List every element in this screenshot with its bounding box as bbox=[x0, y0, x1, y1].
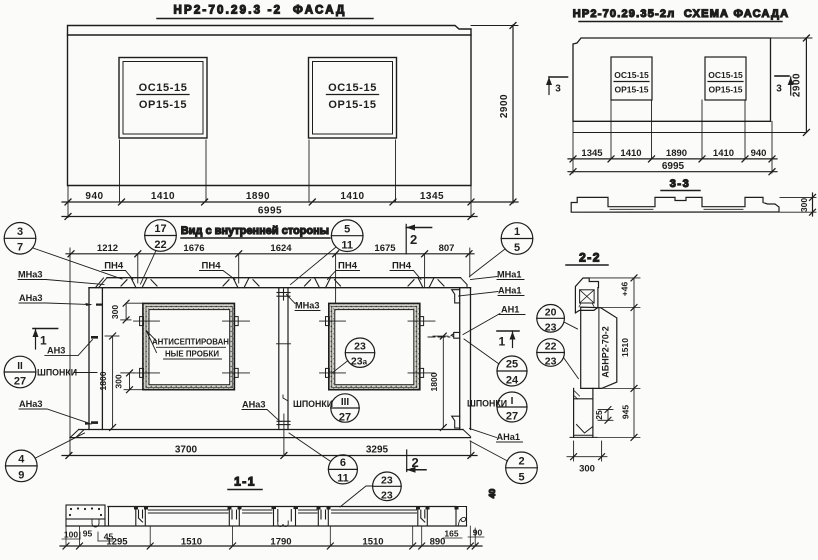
svg-text:МНа1: МНа1 bbox=[497, 270, 522, 280]
svg-text:1676: 1676 bbox=[183, 243, 204, 254]
svg-text:6: 6 bbox=[340, 457, 346, 469]
svg-text:20: 20 bbox=[545, 307, 557, 319]
svg-text:1890: 1890 bbox=[246, 191, 270, 202]
svg-text:5: 5 bbox=[514, 242, 520, 254]
svg-text:95: 95 bbox=[83, 529, 93, 539]
svg-text:ПН4: ПН4 bbox=[338, 261, 358, 272]
svg-text:МНа3: МНа3 bbox=[18, 270, 43, 280]
svg-text:АНТИСЕПТИРОВАН: АНТИСЕПТИРОВАН bbox=[152, 338, 229, 347]
svg-text:I: I bbox=[511, 396, 514, 407]
svg-text:2-2: 2-2 bbox=[579, 251, 601, 265]
svg-text:6995: 6995 bbox=[258, 206, 282, 217]
svg-text:2900: 2900 bbox=[499, 94, 510, 118]
svg-text:АН1: АН1 bbox=[501, 305, 519, 315]
svg-text:2: 2 bbox=[518, 456, 524, 468]
svg-text:17: 17 bbox=[154, 223, 166, 235]
svg-text:АНа3: АНа3 bbox=[242, 400, 266, 410]
svg-text:1345: 1345 bbox=[420, 191, 444, 202]
svg-text:1510: 1510 bbox=[620, 338, 630, 357]
svg-text:1800: 1800 bbox=[429, 372, 439, 391]
svg-text:ОС15-15: ОС15-15 bbox=[614, 70, 649, 80]
svg-text:940: 940 bbox=[751, 148, 767, 159]
svg-text:11: 11 bbox=[341, 240, 353, 252]
svg-text:1: 1 bbox=[514, 226, 520, 238]
svg-text:40: 40 bbox=[487, 489, 497, 499]
svg-text:5: 5 bbox=[344, 224, 350, 236]
svg-text:6995: 6995 bbox=[662, 161, 685, 172]
svg-text:1800: 1800 bbox=[98, 371, 108, 390]
svg-text:27: 27 bbox=[14, 376, 26, 388]
svg-text:3700: 3700 bbox=[175, 445, 198, 456]
svg-text:22: 22 bbox=[154, 239, 166, 251]
svg-text:3295: 3295 bbox=[366, 445, 389, 456]
svg-text:23: 23 bbox=[381, 475, 393, 487]
svg-text:ОС15-15: ОС15-15 bbox=[328, 82, 377, 94]
svg-text:ОР15-15: ОР15-15 bbox=[328, 99, 376, 111]
svg-text:940: 940 bbox=[85, 191, 103, 202]
svg-text:25: 25 bbox=[506, 359, 518, 371]
svg-text:300: 300 bbox=[579, 464, 595, 475]
svg-text:7: 7 bbox=[17, 242, 23, 254]
svg-text:4: 4 bbox=[18, 454, 25, 466]
svg-text:1-1: 1-1 bbox=[234, 475, 256, 489]
svg-text:1212: 1212 bbox=[97, 243, 118, 254]
svg-text:300: 300 bbox=[114, 374, 124, 388]
svg-text:300: 300 bbox=[110, 305, 120, 319]
svg-text:22: 22 bbox=[545, 341, 557, 353]
svg-text:2: 2 bbox=[412, 455, 419, 470]
svg-text:1410: 1410 bbox=[151, 191, 175, 202]
svg-text:II: II bbox=[17, 361, 23, 372]
svg-text:3: 3 bbox=[555, 84, 561, 95]
svg-text:АБНР2-70-2: АБНР2-70-2 bbox=[601, 326, 611, 378]
svg-text:ОС15-15: ОС15-15 bbox=[139, 82, 188, 94]
svg-text:+46: +46 bbox=[620, 282, 630, 297]
svg-text:АНа3: АНа3 bbox=[19, 399, 43, 409]
svg-text:ШПОНКИ: ШПОНКИ bbox=[37, 368, 77, 378]
svg-text:23а: 23а bbox=[351, 356, 368, 368]
svg-text:ПН4: ПН4 bbox=[202, 261, 222, 272]
svg-text:1410: 1410 bbox=[713, 148, 734, 159]
svg-text:23: 23 bbox=[354, 341, 366, 353]
svg-text:3: 3 bbox=[776, 84, 782, 95]
svg-text:2: 2 bbox=[410, 232, 417, 247]
svg-text:ОР15-15: ОР15-15 bbox=[614, 85, 648, 95]
svg-text:90: 90 bbox=[473, 528, 483, 538]
svg-text:ОР15-15: ОР15-15 bbox=[139, 99, 187, 111]
svg-text:11: 11 bbox=[337, 473, 349, 485]
svg-text:45: 45 bbox=[104, 532, 114, 542]
svg-text:НЫЕ ПРОБКИ: НЫЕ ПРОБКИ bbox=[165, 350, 219, 359]
svg-text:807: 807 bbox=[439, 243, 455, 254]
svg-text:ОР15-15: ОР15-15 bbox=[708, 85, 742, 95]
svg-text:1410: 1410 bbox=[340, 191, 364, 202]
svg-text:25: 25 bbox=[594, 410, 604, 420]
svg-text:3: 3 bbox=[17, 226, 23, 238]
svg-text:1: 1 bbox=[499, 335, 506, 349]
svg-text:АНа1: АНа1 bbox=[497, 432, 521, 442]
svg-text:ШПОНКИ: ШПОНКИ bbox=[467, 399, 507, 409]
svg-text:ШПОНКИ: ШПОНКИ bbox=[293, 399, 333, 409]
svg-text:27: 27 bbox=[506, 411, 518, 423]
svg-text:НР2-70.29.3 -2 ФАСАД: НР2-70.29.3 -2 ФАСАД bbox=[173, 5, 346, 17]
svg-text:1510: 1510 bbox=[362, 537, 383, 548]
svg-text:1345: 1345 bbox=[581, 148, 603, 159]
svg-text:АНа1: АНа1 bbox=[498, 286, 522, 296]
svg-text:5: 5 bbox=[518, 472, 524, 484]
svg-text:1624: 1624 bbox=[270, 243, 292, 254]
svg-text:3-3: 3-3 bbox=[670, 178, 690, 190]
svg-text:27: 27 bbox=[339, 412, 351, 424]
svg-text:945: 945 bbox=[621, 405, 631, 419]
svg-text:1410: 1410 bbox=[620, 148, 641, 159]
svg-text:Вид с внутренней стороны: Вид с внутренней стороны bbox=[181, 225, 329, 237]
svg-text:1790: 1790 bbox=[270, 537, 291, 548]
svg-text:III: III bbox=[341, 397, 350, 408]
svg-text:ПН4: ПН4 bbox=[104, 261, 124, 272]
svg-text:1675: 1675 bbox=[374, 243, 396, 254]
svg-text:ПН4: ПН4 bbox=[392, 261, 412, 272]
svg-text:24: 24 bbox=[506, 375, 519, 387]
svg-text:ОС15-15: ОС15-15 bbox=[708, 70, 743, 80]
svg-text:23: 23 bbox=[545, 322, 557, 334]
svg-text:АНа3: АНа3 bbox=[19, 293, 43, 303]
svg-text:23: 23 bbox=[545, 356, 557, 368]
svg-text:2900: 2900 bbox=[792, 73, 803, 97]
svg-text:165: 165 bbox=[444, 529, 458, 539]
svg-text:300: 300 bbox=[799, 198, 809, 212]
svg-text:1510: 1510 bbox=[181, 537, 202, 548]
svg-text:9: 9 bbox=[18, 470, 24, 482]
svg-text:23: 23 bbox=[381, 490, 393, 502]
svg-text:100: 100 bbox=[64, 530, 78, 540]
svg-text:МНа3: МНа3 bbox=[295, 301, 320, 311]
svg-text:1: 1 bbox=[40, 334, 47, 348]
svg-text:АН3: АН3 bbox=[47, 346, 65, 356]
svg-text:НР2-70.29.35-2л СХЕМА ФАСАДА: НР2-70.29.35-2л СХЕМА ФАСАДА bbox=[573, 8, 790, 20]
svg-text:1890: 1890 bbox=[666, 148, 687, 159]
